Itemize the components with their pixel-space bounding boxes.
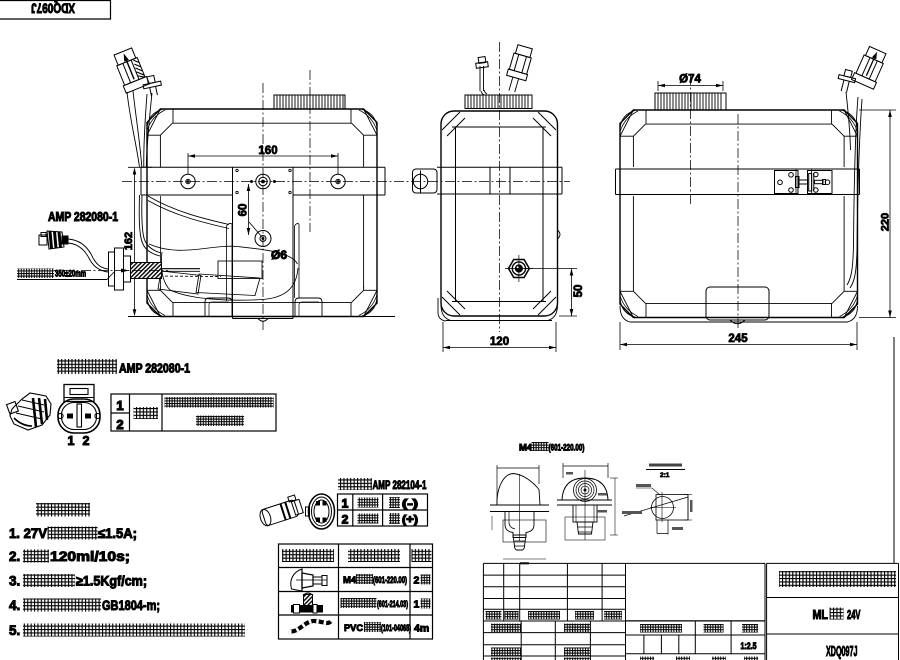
svg-text:1:2.5: 1:2.5 xyxy=(741,641,758,652)
svg-text:120ml/10s;: 120ml/10s; xyxy=(50,549,130,564)
svg-text:2: 2 xyxy=(342,513,349,527)
svg-text:PVC: PVC xyxy=(344,623,363,634)
svg-text:AMP 282080-1: AMP 282080-1 xyxy=(119,361,190,376)
svg-text:245: 245 xyxy=(728,333,748,345)
svg-text:(601-214.03): (601-214.03) xyxy=(377,599,408,609)
svg-text:24V: 24V xyxy=(847,607,861,622)
svg-text:4m: 4m xyxy=(414,623,429,635)
svg-text:(601-220.00): (601-220.00) xyxy=(549,443,585,454)
svg-text:≤1.5A;: ≤1.5A; xyxy=(98,526,137,541)
svg-text:≥1.5Kgf/cm;: ≥1.5Kgf/cm; xyxy=(76,574,147,589)
svg-text:162: 162 xyxy=(123,232,135,250)
svg-text:1: 1 xyxy=(116,398,123,413)
svg-text:(+): (+) xyxy=(402,514,418,526)
svg-text:AMP 282080-1: AMP 282080-1 xyxy=(48,210,118,224)
svg-text:2: 2 xyxy=(116,417,123,432)
svg-text:1: 1 xyxy=(68,434,75,448)
svg-text:5.: 5. xyxy=(9,623,20,638)
svg-text:XDQ097J: XDQ097J xyxy=(826,644,858,660)
svg-text:GB1804-m;: GB1804-m; xyxy=(102,598,160,613)
svg-text:ML: ML xyxy=(813,607,829,622)
svg-text:160: 160 xyxy=(258,145,277,157)
svg-text:1. 27V: 1. 27V xyxy=(9,526,47,541)
svg-text:2.: 2. xyxy=(9,549,20,564)
svg-text:M4: M4 xyxy=(343,575,357,586)
svg-text:220: 220 xyxy=(880,213,892,231)
svg-text:50: 50 xyxy=(573,285,585,298)
svg-text:120: 120 xyxy=(490,336,509,348)
svg-text:(601-220.00): (601-220.00) xyxy=(373,575,407,585)
svg-text:2:1: 2:1 xyxy=(660,472,670,479)
svg-text:AMP 282104-1: AMP 282104-1 xyxy=(373,480,427,492)
svg-text:4.: 4. xyxy=(9,598,20,613)
svg-text:2: 2 xyxy=(414,575,420,587)
svg-text:3.: 3. xyxy=(9,574,20,589)
svg-text:350±20mm: 350±20mm xyxy=(55,269,86,280)
svg-text:(101-04068): (101-04068) xyxy=(381,623,411,633)
svg-text:2: 2 xyxy=(83,434,90,448)
svg-text:(-): (-) xyxy=(402,498,418,510)
svg-text:1: 1 xyxy=(342,497,349,511)
svg-text:XDQ097J: XDQ097J xyxy=(31,1,75,16)
svg-text:M4: M4 xyxy=(519,443,533,454)
svg-text:1: 1 xyxy=(414,599,420,611)
svg-text:60: 60 xyxy=(238,204,250,217)
